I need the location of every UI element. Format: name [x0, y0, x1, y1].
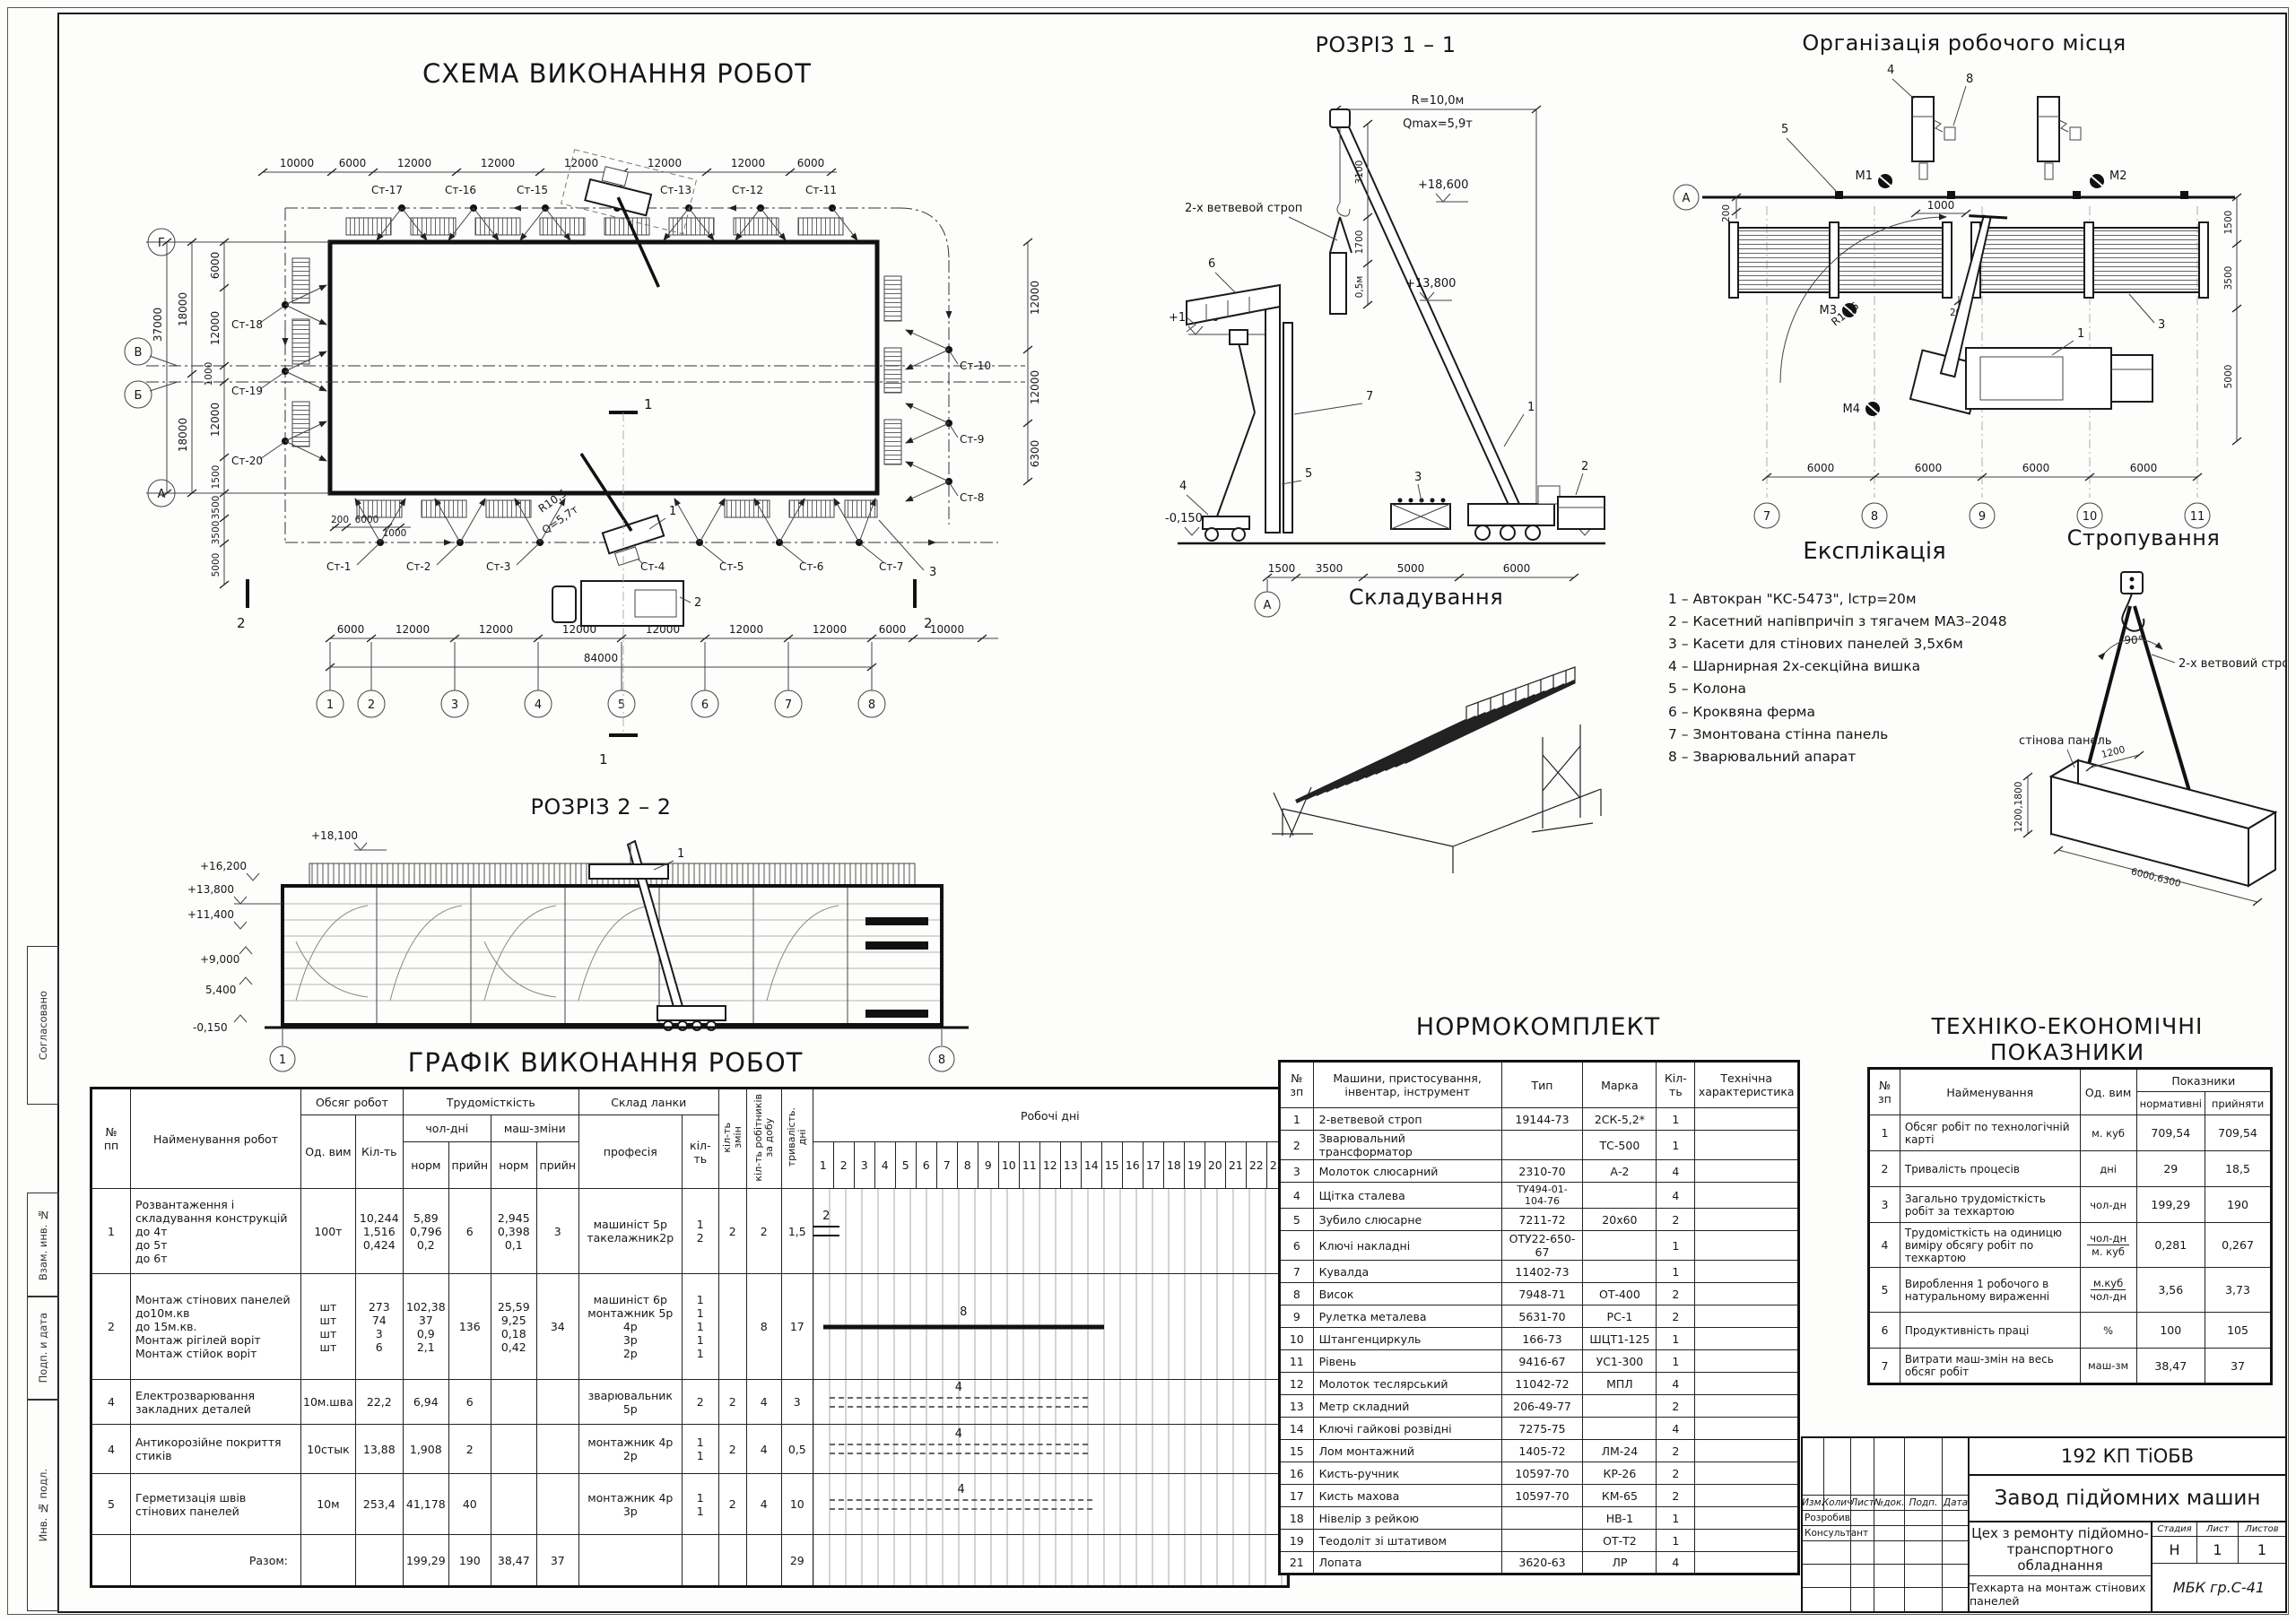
stamp-sogl: Согласовано	[27, 946, 59, 1105]
schedule-cell: 0,5	[781, 1425, 813, 1474]
svg-text:6000: 6000	[2022, 462, 2050, 474]
col-mandays: чол-дні	[403, 1115, 491, 1142]
schedule-cell: 2	[718, 1474, 746, 1535]
svg-text:5: 5	[1305, 467, 1312, 481]
schedule-cell: 8	[746, 1274, 781, 1380]
svg-text:1500: 1500	[2223, 211, 2234, 235]
day-col: 1	[813, 1142, 833, 1189]
svg-text:12000: 12000	[481, 157, 515, 169]
svg-text:Ст-17: Ст-17	[371, 184, 403, 196]
schedule-cell: 41,178	[403, 1474, 448, 1535]
norm-cell: 2-ветвевой строп	[1313, 1108, 1501, 1131]
plan-title: СХЕМА ВИКОНАННЯ РОБОТ	[422, 58, 812, 89]
norm-cell: 1	[1657, 1350, 1695, 1373]
schedule-row: 4Антикорозійне покриття стиків10стык13,8…	[91, 1425, 1289, 1474]
norm-cell: УС1-300	[1583, 1350, 1657, 1373]
norm-cell: 7275-75	[1501, 1418, 1583, 1440]
svg-text:3: 3	[2158, 318, 2165, 332]
tep-title: ТЕХНІКО-ЕКОНОМІЧНІ ПОКАЗНИКИ	[1857, 1013, 2278, 1065]
schedule-cell: 40	[448, 1474, 491, 1535]
norm-cell: Ключі накладні	[1313, 1231, 1501, 1261]
norm-cell: 19	[1280, 1530, 1314, 1552]
norm-cell: Лопата	[1313, 1552, 1501, 1574]
norm-cell	[1695, 1305, 1799, 1328]
stamp-inv: Инв. № подл.	[27, 1399, 59, 1611]
col-qty: Кіл-ть	[355, 1115, 403, 1189]
norm-cell: 2	[1657, 1462, 1695, 1485]
day-col: 22	[1246, 1142, 1266, 1189]
day-col: 9	[978, 1142, 998, 1189]
norm-cell	[1501, 1507, 1583, 1530]
norm-row: 9Рулетка металева5631-70РС-12	[1280, 1305, 1799, 1328]
schedule-cell: Електрозварювання закладних деталей	[131, 1380, 301, 1425]
norm-cell: 2СК-5,2*	[1583, 1108, 1657, 1131]
norm-cell: Лом монтажний	[1313, 1440, 1501, 1462]
norm-cell: 4	[1657, 1418, 1695, 1440]
norm-cell: 10	[1280, 1328, 1314, 1350]
norm-cell	[1501, 1530, 1583, 1552]
schedule-cell	[536, 1474, 578, 1535]
svg-text:1000: 1000	[204, 362, 214, 386]
plan-dims-top: 10000 6000 12000 12000 12000 12000 12000…	[258, 157, 837, 176]
tep-cell: Загально трудомісткість робіт за техкарт…	[1900, 1187, 2080, 1223]
norm-cell	[1695, 1231, 1799, 1261]
grid-a: А	[1683, 192, 1691, 205]
schedule-cell: 6	[448, 1380, 491, 1425]
day-col: 21	[1225, 1142, 1246, 1189]
norm-cell: 11042-72	[1501, 1373, 1583, 1395]
tep-col-adopt: прийняти	[2205, 1092, 2272, 1115]
schedule-cell	[491, 1380, 536, 1425]
norm-cell	[1695, 1209, 1799, 1231]
norm-cell: ОТУ22-650-67	[1501, 1231, 1583, 1261]
norm-row: 7Кувалда11402-731	[1280, 1261, 1799, 1283]
norm-cell: Штангенциркуль	[1313, 1328, 1501, 1350]
workplace-view: Організація робочого місця А 200 4 8 М1 …	[1650, 27, 2278, 551]
norm-cell: 14	[1280, 1418, 1314, 1440]
svg-text:12000: 12000	[729, 623, 763, 636]
tep-cell: м. куб	[2080, 1115, 2136, 1151]
svg-text:+18,600: +18,600	[1418, 178, 1468, 192]
schedule-cell: зварювальник 5р	[578, 1380, 682, 1425]
norm-cell	[1695, 1160, 1799, 1183]
svg-text:+11,400: +11,400	[187, 908, 234, 921]
norm-cell: 2	[1657, 1485, 1695, 1507]
crane-stops-right: Ст-10 Ст-9 Ст-8 12000 12000 6300	[906, 239, 1041, 504]
schedule-cell: 10,244 1,516 0,424	[355, 1189, 403, 1274]
norm-cell: 4	[1657, 1160, 1695, 1183]
norm-row: 19Теодоліт зі штативомОТ-Т21	[1280, 1530, 1799, 1552]
norm-cell	[1583, 1231, 1657, 1261]
tep-row: 7Витрати маш-змін на весь обсяг робітмаш…	[1869, 1349, 2272, 1384]
schedule-cell: 10стык	[301, 1425, 356, 1474]
tep-cell: %	[2080, 1313, 2136, 1349]
svg-text:Г: Г	[158, 237, 165, 250]
norm-col-qty: Кіл-ть	[1657, 1062, 1695, 1108]
title-block: Изм. Колич Лист №док. Подп. Дата Розроби…	[1801, 1436, 2287, 1613]
tep-cell: 1	[1869, 1115, 1900, 1151]
norm-cell: Молоток теслярський	[1313, 1373, 1501, 1395]
norm-cell: Висок	[1313, 1283, 1501, 1305]
schedule-cell: 2	[718, 1425, 746, 1474]
svg-text:1700: 1700	[1354, 230, 1365, 255]
schedule-cell: 1,5	[781, 1189, 813, 1274]
norm-cell	[1583, 1395, 1657, 1418]
tep-cell: 6	[1869, 1313, 1900, 1349]
tep-cell: 37	[2205, 1349, 2272, 1384]
tep-cell: 0,267	[2205, 1223, 2272, 1268]
schedule-cell: монтажник 4р 2р	[578, 1425, 682, 1474]
svg-text:Ст-13: Ст-13	[660, 184, 691, 196]
norm-cell	[1695, 1108, 1799, 1131]
schedule-cell: Розвантаження і складування конструкцій …	[131, 1189, 301, 1274]
tep-cell: Витрати маш-змін на весь обсяг робіт	[1900, 1349, 2080, 1384]
svg-text:12000: 12000	[1029, 370, 1041, 404]
schedule-cell: 1 1	[682, 1425, 718, 1474]
norm-cell: 15	[1280, 1440, 1314, 1462]
svg-text:12000: 12000	[648, 157, 682, 169]
col-unit: Од. вим	[301, 1115, 356, 1189]
norm-cell: 2	[1657, 1305, 1695, 1328]
day-col: 15	[1101, 1142, 1122, 1189]
schedule-cell: 6	[448, 1189, 491, 1274]
norm-cell: 20х60	[1583, 1209, 1657, 1231]
tep-row: 3Загально трудомісткість робіт за техкар…	[1869, 1187, 2272, 1223]
tb-col-data: Дата	[1943, 1496, 1970, 1511]
day-col: 7	[936, 1142, 957, 1189]
col-workers: кіл-ть робітників за добу	[746, 1089, 781, 1189]
svg-text:4: 4	[535, 698, 542, 712]
svg-text:Ст-3: Ст-3	[486, 560, 510, 573]
schedule-cell: 102,38 37 0,9 2,1	[403, 1274, 448, 1380]
day-col: 8	[957, 1142, 978, 1189]
workplace-title: Організація робочого місця	[1802, 30, 2126, 56]
schedule-row: Разом:199,2919038,473729	[91, 1535, 1289, 1587]
schedule-cell	[578, 1535, 682, 1587]
norm-cell: 7211-72	[1501, 1209, 1583, 1231]
svg-text:Ст-11: Ст-11	[805, 184, 837, 196]
svg-text:6000: 6000	[2130, 462, 2158, 474]
svg-text:6000: 6000	[1807, 462, 1835, 474]
norm-cell: НВ-1	[1583, 1507, 1657, 1530]
plan-dims-left: 18000 18000 37000 6000 12000 1000 12000 …	[152, 239, 229, 588]
svg-text:1200,1800: 1200,1800	[2013, 782, 2024, 833]
day-col: 17	[1143, 1142, 1163, 1189]
gantt-bar	[830, 1397, 1088, 1408]
section-1-1-view: РОЗРІЗ 1 – 1 R=10,0м Qmax=5,9т 1 3100 17…	[1152, 27, 1619, 623]
schedule-cell	[491, 1425, 536, 1474]
tep-cell: чол-днм. куб	[2080, 1223, 2136, 1268]
schedule-cell: 13,88	[355, 1425, 403, 1474]
norm-cell	[1695, 1350, 1799, 1373]
norm-cell: КМ-65	[1583, 1485, 1657, 1507]
tb-sheet: 1	[2197, 1537, 2239, 1564]
callout: 3	[929, 566, 936, 579]
tb-col-kolich: Колич	[1824, 1496, 1851, 1511]
norm-cell: Молоток слюсарний	[1313, 1160, 1501, 1183]
tb-doc-code: 192 КП ТіОБВ	[1970, 1438, 2285, 1476]
norm-row: 12-ветвевой строп19144-732СК-5,2*1	[1280, 1108, 1799, 1131]
norm-cell: 2	[1280, 1131, 1314, 1160]
tb-group: МБК гр.С-41	[2152, 1564, 2285, 1611]
schedule-cell: 1 1	[682, 1474, 718, 1535]
norm-row: 12Молоток теслярський11042-72МПЛ4	[1280, 1373, 1799, 1395]
wp-lifts: 4 8	[1887, 64, 2081, 179]
svg-text:Ст-16: Ст-16	[445, 184, 476, 196]
svg-text:1: 1	[326, 698, 334, 712]
schedule-cell: 4	[91, 1380, 131, 1425]
norm-cell: ТС-500	[1583, 1131, 1657, 1160]
schedule-cell: 2	[746, 1189, 781, 1274]
gantt-cell: 4	[813, 1380, 1288, 1425]
svg-text:1: 1	[2077, 327, 2084, 341]
day-col: 12	[1039, 1142, 1060, 1189]
svg-text:6000: 6000	[339, 157, 367, 169]
svg-text:9: 9	[1979, 510, 1986, 524]
svg-text:2: 2	[1581, 460, 1588, 473]
norm-cell: 9416-67	[1501, 1350, 1583, 1373]
tep-cell: 2	[1869, 1151, 1900, 1187]
col-machshifts: маш-зміни	[491, 1115, 578, 1142]
stamp-label: Инв. № подл.	[37, 1469, 49, 1541]
schedule-title: ГРАФІК ВИКОНАННЯ РОБОТ	[90, 1047, 1121, 1078]
col-prof: професія	[578, 1115, 682, 1189]
norm-row: 8Висок7948-71ОТ-4002	[1280, 1283, 1799, 1305]
norm-col-mark: Марка	[1583, 1062, 1657, 1108]
stamp-vzam: Взам. инв. №	[27, 1193, 59, 1297]
tb-subject: Техкарта на монтаж стінових панелей	[1970, 1576, 2152, 1611]
schedule-cell: 10м	[301, 1474, 356, 1535]
norm-cell	[1695, 1462, 1799, 1485]
norm-cell	[1583, 1261, 1657, 1283]
norm-cell: 1	[1657, 1131, 1695, 1160]
norm-cell: 17	[1280, 1485, 1314, 1507]
tep-row: 1Обсяг робіт по технологічній картім. ку…	[1869, 1115, 2272, 1151]
schedule-cell: 2	[718, 1380, 746, 1425]
schedule-row: 5Герметизація швів стінових панелей10м25…	[91, 1474, 1289, 1535]
svg-text:1: 1	[644, 396, 653, 412]
r1-sling-label: 2-х ветвевой строп	[1185, 202, 1302, 215]
tep-cell: Обсяг робіт по технологічній карті	[1900, 1115, 2080, 1151]
schedule-cell	[491, 1474, 536, 1535]
svg-text:6: 6	[1208, 257, 1215, 271]
tep-cell: 3,73	[2205, 1268, 2272, 1313]
svg-text:М4: М4	[1843, 403, 1861, 416]
schedule-cell: 4	[91, 1425, 131, 1474]
tep-cell: Тривалість процесів	[1900, 1151, 2080, 1187]
schedule-cell	[746, 1535, 781, 1587]
svg-text:2: 2	[368, 698, 375, 712]
norm-cell: 7948-71	[1501, 1283, 1583, 1305]
svg-text:R=10,0м: R=10,0м	[1412, 94, 1465, 108]
schedule-row: 4Електрозварювання закладних деталей10м.…	[91, 1380, 1289, 1425]
stacking-title: Складування	[1349, 585, 1503, 610]
norm-cell: Кисть-ручник	[1313, 1462, 1501, 1485]
tep-cell: чол-дн	[2080, 1187, 2136, 1223]
norm-cell	[1695, 1440, 1799, 1462]
tep-cell: 29	[2136, 1151, 2205, 1187]
norm-row: 3Молоток слюсарний2310-70А-24	[1280, 1160, 1799, 1183]
col-crew: Склад ланки	[578, 1089, 718, 1115]
norm-cell: 9	[1280, 1305, 1314, 1328]
svg-text:+9,000: +9,000	[200, 953, 239, 966]
section-1-1-title: РОЗРІЗ 1 – 1	[1315, 32, 1456, 57]
schedule-cell: машиніст 5р такелажник2р	[578, 1189, 682, 1274]
norm-cell: 166-73	[1501, 1328, 1583, 1350]
norm-row: 13Метр складний206-49-772	[1280, 1395, 1799, 1418]
wp-dims-right: 1500 3500 5000	[2223, 194, 2241, 445]
norm-cell: 1405-72	[1501, 1440, 1583, 1462]
col-volume: Обсяг робот	[301, 1089, 404, 1115]
norm-cell	[1695, 1373, 1799, 1395]
schedule-row: 1Розвантаження і складування конструкцій…	[91, 1189, 1289, 1274]
norm-cell: 6	[1280, 1231, 1314, 1261]
norm-row: 16Кисть-ручник10597-70КР-262	[1280, 1462, 1799, 1485]
tb-sheets: 1	[2239, 1537, 2285, 1564]
svg-text:18000: 18000	[177, 292, 189, 326]
norm-cell: 1	[1657, 1231, 1695, 1261]
schedule-cell: 1,908	[403, 1425, 448, 1474]
tep-row: 2Тривалість процесівдні2918,5	[1869, 1151, 2272, 1187]
day-col: 3	[854, 1142, 874, 1189]
norm-cell: 4	[1657, 1373, 1695, 1395]
schedule-cell	[536, 1380, 578, 1425]
norm-cell: 1	[1657, 1261, 1695, 1283]
norm-cell	[1695, 1507, 1799, 1530]
norm-cell: ТУ494-01- 104-76	[1501, 1183, 1583, 1209]
stamp-label: Подп. и дата	[37, 1313, 49, 1383]
norm-cell: 1	[1280, 1108, 1314, 1131]
svg-text:+18,100: +18,100	[311, 829, 358, 842]
gantt-cell	[813, 1535, 1288, 1587]
svg-text:5000: 5000	[211, 553, 222, 577]
col-days: Робочі дні	[813, 1089, 1288, 1142]
norm-cell	[1695, 1530, 1799, 1552]
norm-cell: 7	[1280, 1261, 1314, 1283]
day-col: 13	[1060, 1142, 1081, 1189]
building-outline	[330, 242, 877, 493]
gantt-bar-label: 8	[960, 1305, 967, 1319]
svg-text:12000: 12000	[479, 623, 513, 636]
norm-cell: 8	[1280, 1283, 1314, 1305]
stacking-view: Складування	[1247, 567, 1632, 889]
svg-text:3500: 3500	[2223, 266, 2234, 291]
norm-cell: 2	[1657, 1283, 1695, 1305]
schedule-cell: 253,4	[355, 1474, 403, 1535]
svg-text:3100: 3100	[1354, 160, 1365, 185]
svg-text:1: 1	[677, 847, 684, 861]
stamp-label: Согласовано	[37, 991, 49, 1060]
gantt-bar-label: 4	[955, 1381, 962, 1394]
norm-col-tech: Технічна характеристика	[1695, 1062, 1799, 1108]
norm-cell: 1	[1657, 1108, 1695, 1131]
norm-cell: 2	[1657, 1440, 1695, 1462]
col-shifts: кіл-ть змін	[718, 1089, 746, 1189]
svg-text:Ст-8: Ст-8	[960, 491, 984, 504]
svg-text:2: 2	[924, 615, 933, 631]
schedule-cell: Разом:	[131, 1535, 301, 1587]
crane-stops-left: Ст-18 Ст-19 Ст-20	[231, 285, 326, 467]
tb-col-podp: Подп.	[1905, 1496, 1943, 1511]
schedule-cell: 2,945 0,398 0,1	[491, 1189, 536, 1274]
tep-cell: дні	[2080, 1151, 2136, 1187]
svg-text:7: 7	[785, 698, 792, 712]
tb-h-sheet: Лист	[2197, 1522, 2239, 1537]
drawing-sheet: Согласовано Взам. инв. № Подп. и дата Ин…	[0, 0, 2296, 1622]
norm-cell: Щітка сталева	[1313, 1183, 1501, 1209]
tep-row: 4Трудомісткість на одиницю виміру обсягу…	[1869, 1223, 2272, 1268]
norm-cell: ЛР	[1583, 1552, 1657, 1574]
svg-text:-0,150: -0,150	[193, 1021, 228, 1034]
r2-elevations: +18,100 +16,200 +13,800 +11,400 +9,000 5…	[187, 829, 387, 1034]
svg-text:1000: 1000	[383, 528, 407, 539]
norm-cell	[1695, 1261, 1799, 1283]
norm-cell: ЛМ-24	[1583, 1440, 1657, 1462]
norm-row: 18Нівелір з рейкоюНВ-11	[1280, 1507, 1799, 1530]
norm-table: № зп Машини, пристосування, інвентар, ін…	[1278, 1060, 1800, 1575]
norm-cell: 1	[1657, 1530, 1695, 1552]
svg-text:12000: 12000	[562, 623, 596, 636]
tep-cell: 7	[1869, 1349, 1900, 1384]
tb-h-stage: Стадия	[2152, 1522, 2197, 1537]
tep-cell: 105	[2205, 1313, 2272, 1349]
norm-cell: 19144-73	[1501, 1108, 1583, 1131]
norm-cell: 3620-63	[1501, 1552, 1583, 1574]
norm-cell: 1	[1657, 1507, 1695, 1530]
norm-cell: ОТ-400	[1583, 1283, 1657, 1305]
norm-row: 15Лом монтажний1405-72ЛМ-242	[1280, 1440, 1799, 1462]
col-workers-label: кіл-ть робітників за добу	[753, 1094, 775, 1182]
norm-cell: 11	[1280, 1350, 1314, 1373]
norm-cell: 13	[1280, 1395, 1314, 1418]
schedule-cell: 10	[781, 1474, 813, 1535]
norm-cell: Зубило слюсарне	[1313, 1209, 1501, 1231]
section-2-2-title: РОЗРІЗ 2 – 2	[530, 794, 671, 820]
norm-row: 10Штангенциркуль166-73ШЦТ1-1251	[1280, 1328, 1799, 1350]
gantt-bar	[830, 1499, 1092, 1510]
norm-cell: 5631-70	[1501, 1305, 1583, 1328]
norm-cell: Теодоліт зі штативом	[1313, 1530, 1501, 1552]
svg-text:+16,200: +16,200	[200, 860, 247, 872]
svg-text:Ст-18: Ст-18	[231, 318, 263, 331]
schedule-table: № пп Найменування робот Обсяг робот Труд…	[90, 1087, 1290, 1588]
day-col: 20	[1205, 1142, 1225, 1189]
day-col: 11	[1019, 1142, 1039, 1189]
tep-cell: Продуктивність праці	[1900, 1313, 2080, 1349]
svg-text:Ст-9: Ст-9	[960, 433, 984, 446]
schedule-cell: 29	[781, 1535, 813, 1587]
schedule-cell	[718, 1535, 746, 1587]
schedule-cell: 25,59 9,25 0,18 0,42	[491, 1274, 536, 1380]
svg-text:12000: 12000	[813, 623, 847, 636]
svg-text:Ст-10: Ст-10	[960, 360, 991, 372]
norm-cell: 10597-70	[1501, 1485, 1583, 1507]
col-name: Найменування робот	[131, 1089, 301, 1189]
norm-cell	[1583, 1183, 1657, 1209]
tb-stage: Н	[2152, 1537, 2197, 1564]
schedule-cell	[301, 1535, 356, 1587]
svg-text:-0,150: -0,150	[1165, 512, 1203, 525]
schedule-cell: 1	[91, 1189, 131, 1274]
tep-cell: 190	[2205, 1187, 2272, 1223]
tep-row: 5Вироблення 1 робочого в натуральному ви…	[1869, 1268, 2272, 1313]
tb-col-list: Лист	[1851, 1496, 1874, 1511]
norm-cell: 10597-70	[1501, 1462, 1583, 1485]
day-col: 19	[1184, 1142, 1205, 1189]
schedule-row: 2Монтаж стінових панелей до10м.кв до 15м…	[91, 1274, 1289, 1380]
norm-cell: 2	[1657, 1395, 1695, 1418]
schedule-cell: 199,29	[403, 1535, 448, 1587]
